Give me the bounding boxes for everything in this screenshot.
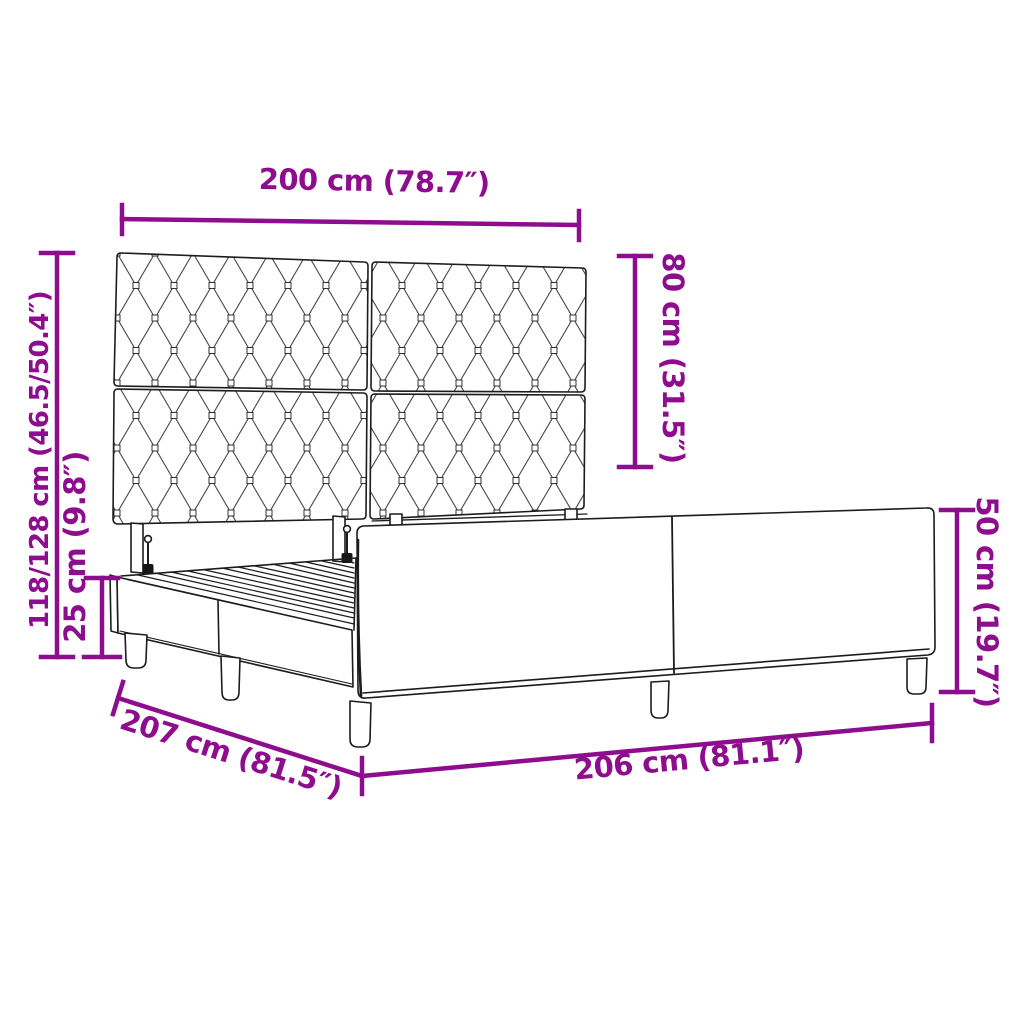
dimension-label-headboard-width: 200 cm (78.7″) <box>259 162 490 200</box>
dimension-side-panel-height <box>941 510 973 692</box>
dimension-label-headboard-panel-height: 80 cm (31.5″) <box>656 252 690 463</box>
headboard <box>113 253 586 524</box>
bed-leg <box>907 658 927 694</box>
dimension-label-base-rail-height: 25 cm (9.8″) <box>58 451 92 643</box>
diagram-canvas: 200 cm (78.7″) 80 cm (31.5″) 118/128 cm … <box>0 0 1024 1024</box>
dimension-label-side-panel-height: 50 cm (19.7″) <box>970 496 1004 707</box>
bed-frame-drawing <box>110 253 935 747</box>
headboard-panel-upper-left <box>114 253 368 390</box>
bed-leg <box>221 656 240 700</box>
dimension-label-frame-length-right: 206 cm (81.1″) <box>573 731 806 786</box>
dimension-headboard-width <box>122 205 579 240</box>
bed-leg <box>651 681 669 718</box>
side-panel-face <box>357 508 935 698</box>
dimension-label-overall-height: 118/128 cm (46.5/50.4″) <box>25 291 55 629</box>
dimension-headboard-panel-height <box>619 256 651 467</box>
headboard-panel-upper-right <box>371 262 586 392</box>
headboard-panel-lower-right <box>370 394 585 519</box>
bed-frame-dimension-diagram: 200 cm (78.7″) 80 cm (31.5″) 118/128 cm … <box>0 0 1024 1024</box>
dimension-label-frame-length-left: 207 cm (81.5″) <box>116 702 346 805</box>
screw <box>143 536 154 574</box>
side-panel <box>357 508 935 698</box>
headboard-strap <box>131 523 143 573</box>
bed-leg <box>125 633 147 668</box>
bed-leg <box>350 701 371 747</box>
headboard-panel-lower-left <box>113 389 367 524</box>
rail-seam <box>218 601 219 654</box>
